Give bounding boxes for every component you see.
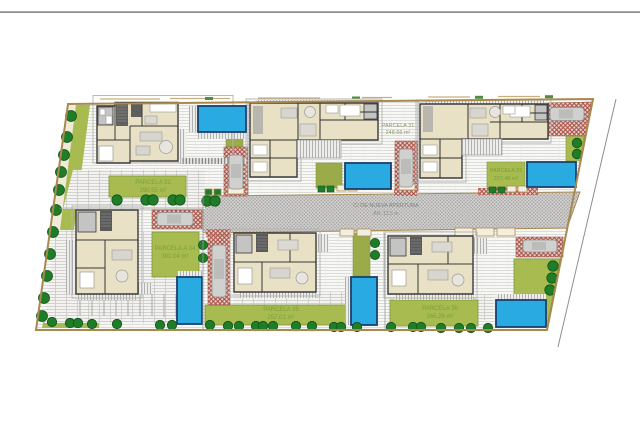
svg-text:PARCELA 33: PARCELA 33 (490, 168, 523, 174)
svg-text:PARCELA A 34: PARCELA A 34 (155, 246, 196, 252)
svg-text:AN. 12.5 m: AN. 12.5 m (373, 211, 398, 217)
svg-text:265.26 m²: 265.26 m² (426, 314, 453, 320)
svg-text:290.55 m²: 290.55 m² (139, 188, 166, 194)
svg-text:248.66 m²: 248.66 m² (386, 130, 411, 136)
svg-text:227.48 m²: 227.48 m² (494, 176, 519, 182)
svg-text:257.01 m²: 257.01 m² (267, 315, 294, 321)
svg-text:PARCELA 32: PARCELA 32 (135, 180, 171, 186)
svg-text:PARCELA 31: PARCELA 31 (382, 123, 415, 129)
svg-text:301.04 m²: 301.04 m² (161, 254, 188, 260)
svg-text:C/ DE NUEVA APERTURA: C/ DE NUEVA APERTURA (353, 203, 419, 209)
svg-text:PARCELA 35: PARCELA 35 (263, 307, 299, 313)
svg-text:PARCELA 36: PARCELA 36 (422, 306, 458, 312)
